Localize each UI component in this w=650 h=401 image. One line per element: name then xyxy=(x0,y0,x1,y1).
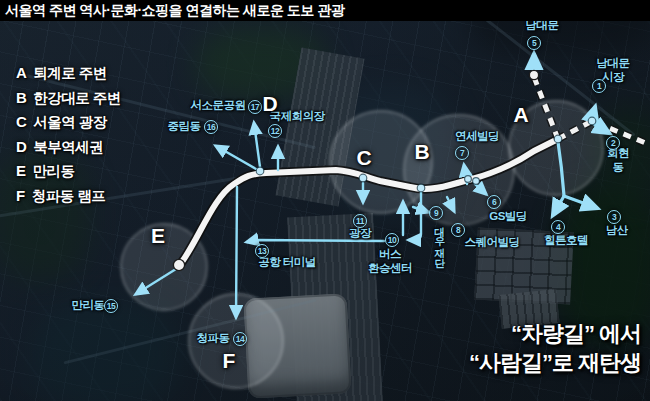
map-label-13: 공항 터미널 xyxy=(258,256,316,270)
map-label-17: 서소문공원 xyxy=(191,99,246,113)
map-label-9: 대우재단 xyxy=(434,219,446,261)
map-label-3: 남산 xyxy=(606,224,628,238)
legend-label: 한강대로 주변 xyxy=(33,90,121,106)
legend-item-f: F청파동 램프 xyxy=(16,184,121,209)
legend-item-a: A퇴계로 주변 xyxy=(16,61,121,86)
map-num-16: 16 xyxy=(204,120,218,134)
headline-line-1: “차량길” 에서 xyxy=(469,319,641,348)
legend-label: 청파동 램프 xyxy=(32,188,106,204)
map-num-7: 7 xyxy=(455,146,469,160)
map-num-6: 6 xyxy=(487,195,501,209)
legend-key: D xyxy=(16,138,26,155)
map-label-14: 청파동 xyxy=(197,332,230,346)
legend-key: A xyxy=(16,64,26,81)
legend-item-c: C서울역 광장 xyxy=(16,110,121,135)
headline: “차량길” 에서 “사람길”로 재탄생 xyxy=(469,319,641,377)
map-num-17: 17 xyxy=(248,100,262,114)
zone-letter-E: E xyxy=(151,224,165,248)
map-label-10: 버스 환승센터 xyxy=(368,248,412,275)
map-label-4: 힐튼호텔 xyxy=(544,234,588,248)
map-label-16: 중림동 xyxy=(168,120,201,134)
legend-label: 서울역 광장 xyxy=(33,114,107,130)
legend-label: 만리동 xyxy=(33,163,75,179)
map-num-10: 10 xyxy=(385,233,399,247)
zone-letter-A: A xyxy=(513,103,528,127)
map-num-12: 12 xyxy=(268,124,282,138)
title-bar: 서울역 주변 역사·문화·쇼핑을 연결하는 새로운 도보 관광 xyxy=(0,0,650,21)
map-num-9: 9 xyxy=(429,206,443,220)
zone-legend: A퇴계로 주변 B한강대로 주변 C서울역 광장 D북부역세권 E만리동 F청파… xyxy=(16,61,121,209)
map-num-4: 4 xyxy=(551,220,565,234)
map-num-2: 2 xyxy=(606,136,620,150)
map-num-11: 11 xyxy=(353,214,367,228)
zone-letter-B: B xyxy=(414,140,429,164)
map-num-5: 5 xyxy=(527,36,541,50)
map-num-8: 8 xyxy=(451,223,465,237)
legend-key: C xyxy=(16,113,26,130)
map-label-2: 회현동 xyxy=(602,147,634,174)
legend-key: B xyxy=(16,89,26,106)
map-label-5: 남대문 xyxy=(526,19,559,33)
legend-item-b: B한강대로 주변 xyxy=(16,86,121,111)
map-num-1: 1 xyxy=(592,79,606,93)
map-label-12: 국제회의장 xyxy=(270,110,325,124)
legend-label: 북부역세권 xyxy=(33,139,103,155)
map-num-14: 14 xyxy=(233,332,247,346)
headline-line-2: “사람길”로 재탄생 xyxy=(469,348,641,377)
legend-item-d: D북부역세권 xyxy=(16,135,121,160)
legend-item-e: E만리동 xyxy=(16,159,121,184)
map-num-3: 3 xyxy=(607,210,621,224)
zone-letter-D: D xyxy=(262,92,277,116)
legend-label: 퇴계로 주변 xyxy=(33,65,107,81)
map-num-15: 15 xyxy=(104,299,118,313)
zone-letter-C: C xyxy=(356,146,371,170)
map-label-7: 연세빌딩 xyxy=(455,130,499,144)
legend-key: E xyxy=(16,162,26,179)
zone-letter-F: F xyxy=(223,349,236,373)
infographic-root: 남대문5남대문 시장1회현동2남산3힐튼호텔4GS빌딩6연세빌딩7스퀘어빌딩8대… xyxy=(0,0,650,401)
map-label-15: 만리동 xyxy=(72,299,105,313)
map-label-6: GS빌딩 xyxy=(489,210,527,224)
legend-key: F xyxy=(16,187,25,204)
map-label-11: 광장 xyxy=(349,227,371,241)
page-title: 서울역 주변 역사·문화·쇼핑을 연결하는 새로운 도보 관광 xyxy=(0,2,344,20)
map-label-8: 스퀘어빌딩 xyxy=(465,236,520,250)
map-num-13: 13 xyxy=(255,244,269,258)
